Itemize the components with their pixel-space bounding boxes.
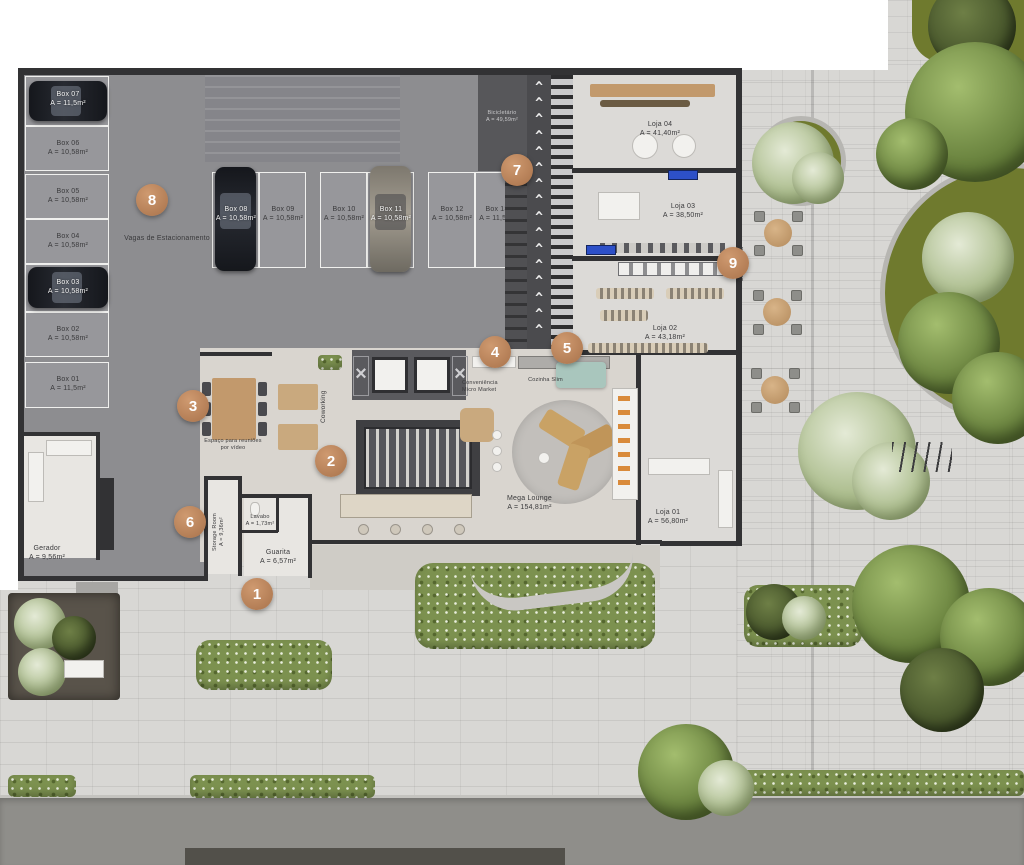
ramp-hatch-zone (205, 75, 400, 162)
stall-label: Box 06 A = 10,58m² (30, 139, 106, 157)
lounge-rug (512, 400, 618, 504)
loja02-label: Loja 02 A = 43,18m² (630, 324, 700, 342)
shrub (18, 648, 66, 696)
clothes-rack (596, 288, 654, 299)
bike-rack-outdoor (892, 442, 952, 472)
marker-1[interactable]: 1 (241, 578, 273, 610)
sofa (46, 440, 92, 456)
guarita-label: Guarita A = 6,57m² (252, 548, 304, 566)
side-table (538, 452, 550, 464)
road-dark-patch (185, 848, 565, 865)
background-top (0, 0, 888, 70)
meeting-chair (202, 422, 211, 436)
ramp-edge-hatch (551, 75, 573, 349)
guarita-wall (308, 494, 312, 578)
marker-5[interactable]: 5 (551, 332, 583, 364)
loja03-label: Loja 03 A = 38,50m² (648, 202, 718, 220)
loja04-label: Loja 04 A = 41,40m² (625, 120, 695, 138)
meeting-room-wall (200, 352, 272, 356)
bar-stool (454, 524, 465, 535)
washer-row (618, 262, 732, 276)
loja03-counter (598, 192, 640, 220)
bar-counter (340, 494, 472, 518)
lavabo-divider (242, 530, 278, 533)
tree (922, 212, 1014, 304)
marker-6[interactable]: 6 (174, 506, 206, 538)
elevator-cab (372, 357, 408, 393)
loja01-label: Loja 01 A = 56,80m² (633, 508, 703, 526)
stall-label: Box 02 A = 10,58m² (30, 325, 106, 343)
lavabo-label: Lavabo A = 1,73m² (238, 514, 282, 528)
cozinha-label: Cozinha Slim (518, 377, 573, 384)
meeting-table (212, 378, 256, 440)
tree (792, 152, 844, 204)
shelving-row (600, 243, 725, 253)
stall-label: Box 01 A = 11,5m² (30, 375, 106, 393)
ramp-direction-arrows: ^ ^ ^ ^ ^ ^ ^ ^ ^ ^ ^ ^ ^ ^ ^ ^ (527, 80, 551, 348)
stall-label: Box 04 A = 10,58m² (30, 232, 106, 250)
outdoor-table-set (759, 294, 795, 330)
shop-divider-1 (572, 168, 737, 173)
coworking-label: Coworking (320, 372, 328, 442)
lounge-chair (492, 430, 502, 440)
coworking-desk (278, 384, 318, 410)
storage-wall-top (204, 476, 242, 480)
bar-stool (422, 524, 433, 535)
curb-grass-strip (190, 775, 375, 798)
bike-racks (505, 171, 527, 349)
wall-top (18, 68, 742, 75)
gerador-label: Gerador A = 9,56m² (12, 544, 82, 562)
curb-grass-strip (742, 770, 1024, 796)
wall-lounge-south (310, 540, 662, 544)
lounge-chair (492, 446, 502, 456)
tree (698, 760, 754, 816)
display-mat (668, 170, 698, 180)
marker-2[interactable]: 2 (315, 445, 347, 477)
meeting-chair (258, 382, 267, 396)
tree (876, 118, 948, 190)
coworking-desk (278, 424, 318, 450)
bar-stool (358, 524, 369, 535)
elevator-cab (414, 357, 450, 393)
wall-bottom-shops (660, 541, 742, 546)
display-mat (586, 245, 616, 255)
clothes-rack (600, 310, 648, 321)
shrub (52, 616, 96, 660)
meeting-chair (258, 402, 267, 416)
marker-9[interactable]: 9 (717, 247, 749, 279)
stall-label: Box 03 A = 10,58m² (30, 278, 106, 296)
outdoor-table-set (757, 372, 793, 408)
bar-stool (390, 524, 401, 535)
marker-7[interactable]: 7 (501, 154, 533, 186)
stall-label: Box 07 A = 11,5m² (30, 90, 106, 108)
outdoor-table-set (760, 215, 796, 251)
tree (900, 648, 984, 732)
marker-8[interactable]: 8 (136, 184, 168, 216)
wall-right (736, 68, 742, 545)
counter-stools (600, 100, 690, 107)
marker-3[interactable]: 3 (177, 390, 209, 422)
loja01-counter (648, 458, 710, 475)
indoor-planter (318, 355, 342, 370)
megalounge-label: Mega Lounge A = 154,81m² (492, 494, 567, 512)
curb-grass-strip (8, 775, 76, 797)
floor-plan-canvas: Box 07 A = 11,5m² Box 06 A = 10,58m² Box… (0, 0, 1024, 865)
marker-4[interactable]: 4 (479, 336, 511, 368)
garden-bench (64, 660, 104, 678)
sofa (28, 452, 44, 502)
parking-caption: Vagas de Estacionamento (112, 234, 222, 243)
meeting-chair (258, 422, 267, 436)
clothes-rack (666, 288, 724, 299)
wall-bottom-left (18, 576, 208, 581)
elevator-shaft-brace: × (353, 356, 369, 396)
storage-label: Storage Room A = 9,36m² (212, 492, 226, 572)
brace-column (100, 478, 114, 550)
shop-divider-2 (572, 256, 737, 261)
background-left (0, 70, 18, 590)
shrub (782, 596, 826, 640)
clothes-rack (588, 343, 708, 353)
kitchen-items (618, 396, 630, 486)
meeting-room-label: Espaço para reuniões por vídeo (188, 438, 278, 452)
lounge-chair (492, 462, 502, 472)
bike-room-label: Bicicletário A = 49,59m² (472, 110, 532, 124)
loja01-fixture (718, 470, 733, 528)
gerador-wall-top (24, 432, 100, 436)
stair-treads (364, 427, 472, 489)
loja04-counter (590, 84, 715, 97)
hedge-bed (196, 640, 332, 690)
stall-label: Box 05 A = 10,58m² (30, 187, 106, 205)
lounge-table-group (460, 408, 494, 442)
